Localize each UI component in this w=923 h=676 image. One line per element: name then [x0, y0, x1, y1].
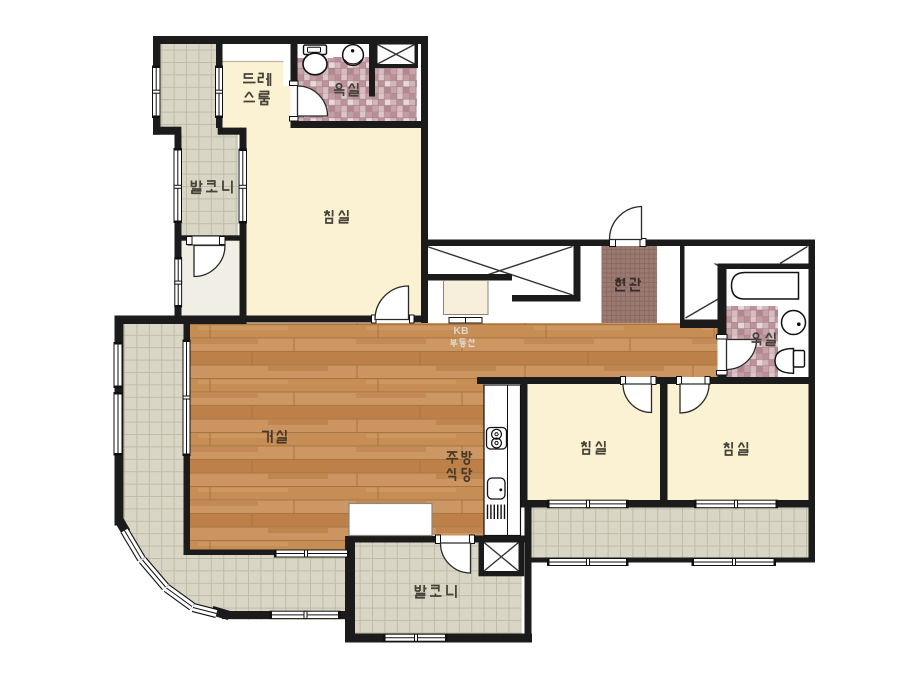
svg-text:KB: KB	[453, 325, 469, 337]
